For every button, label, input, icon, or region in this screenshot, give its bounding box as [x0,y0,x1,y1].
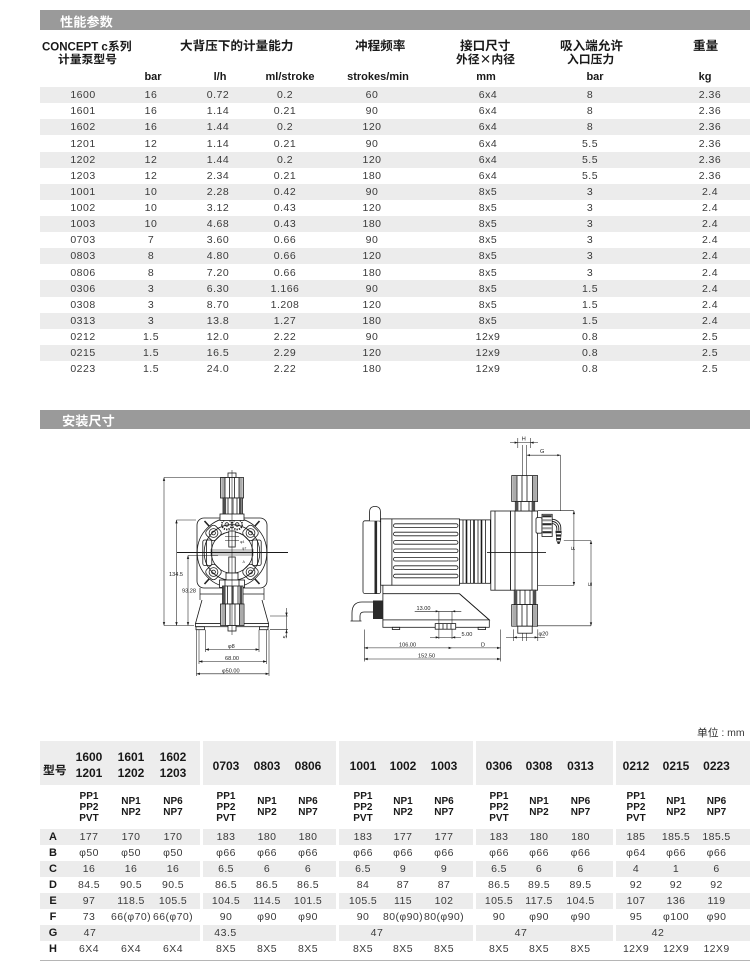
svg-text:G: G [540,449,544,455]
svg-text:D: D [481,642,485,648]
svg-text:134.5: 134.5 [169,572,183,578]
svg-text:E: E [588,582,594,586]
svg-text:5: 5 [283,635,289,638]
svg-text:5.00: 5.00 [462,632,473,638]
svg-text:106.00: 106.00 [399,642,416,648]
svg-text:93.28: 93.28 [182,589,196,595]
svg-text:H: H [522,437,526,443]
svg-text:φ50.00: φ50.00 [222,668,240,674]
svg-text:152.50: 152.50 [418,654,435,660]
svg-text:φ4: φ4 [240,540,244,544]
svg-text:68.00: 68.00 [225,656,239,662]
svg-text:F: F [571,546,577,550]
svg-text:φ8: φ8 [228,644,235,650]
svg-text:φ20: φ20 [539,632,549,638]
svg-text:φ7: φ7 [242,547,246,551]
svg-text:13.00: 13.00 [417,606,431,612]
